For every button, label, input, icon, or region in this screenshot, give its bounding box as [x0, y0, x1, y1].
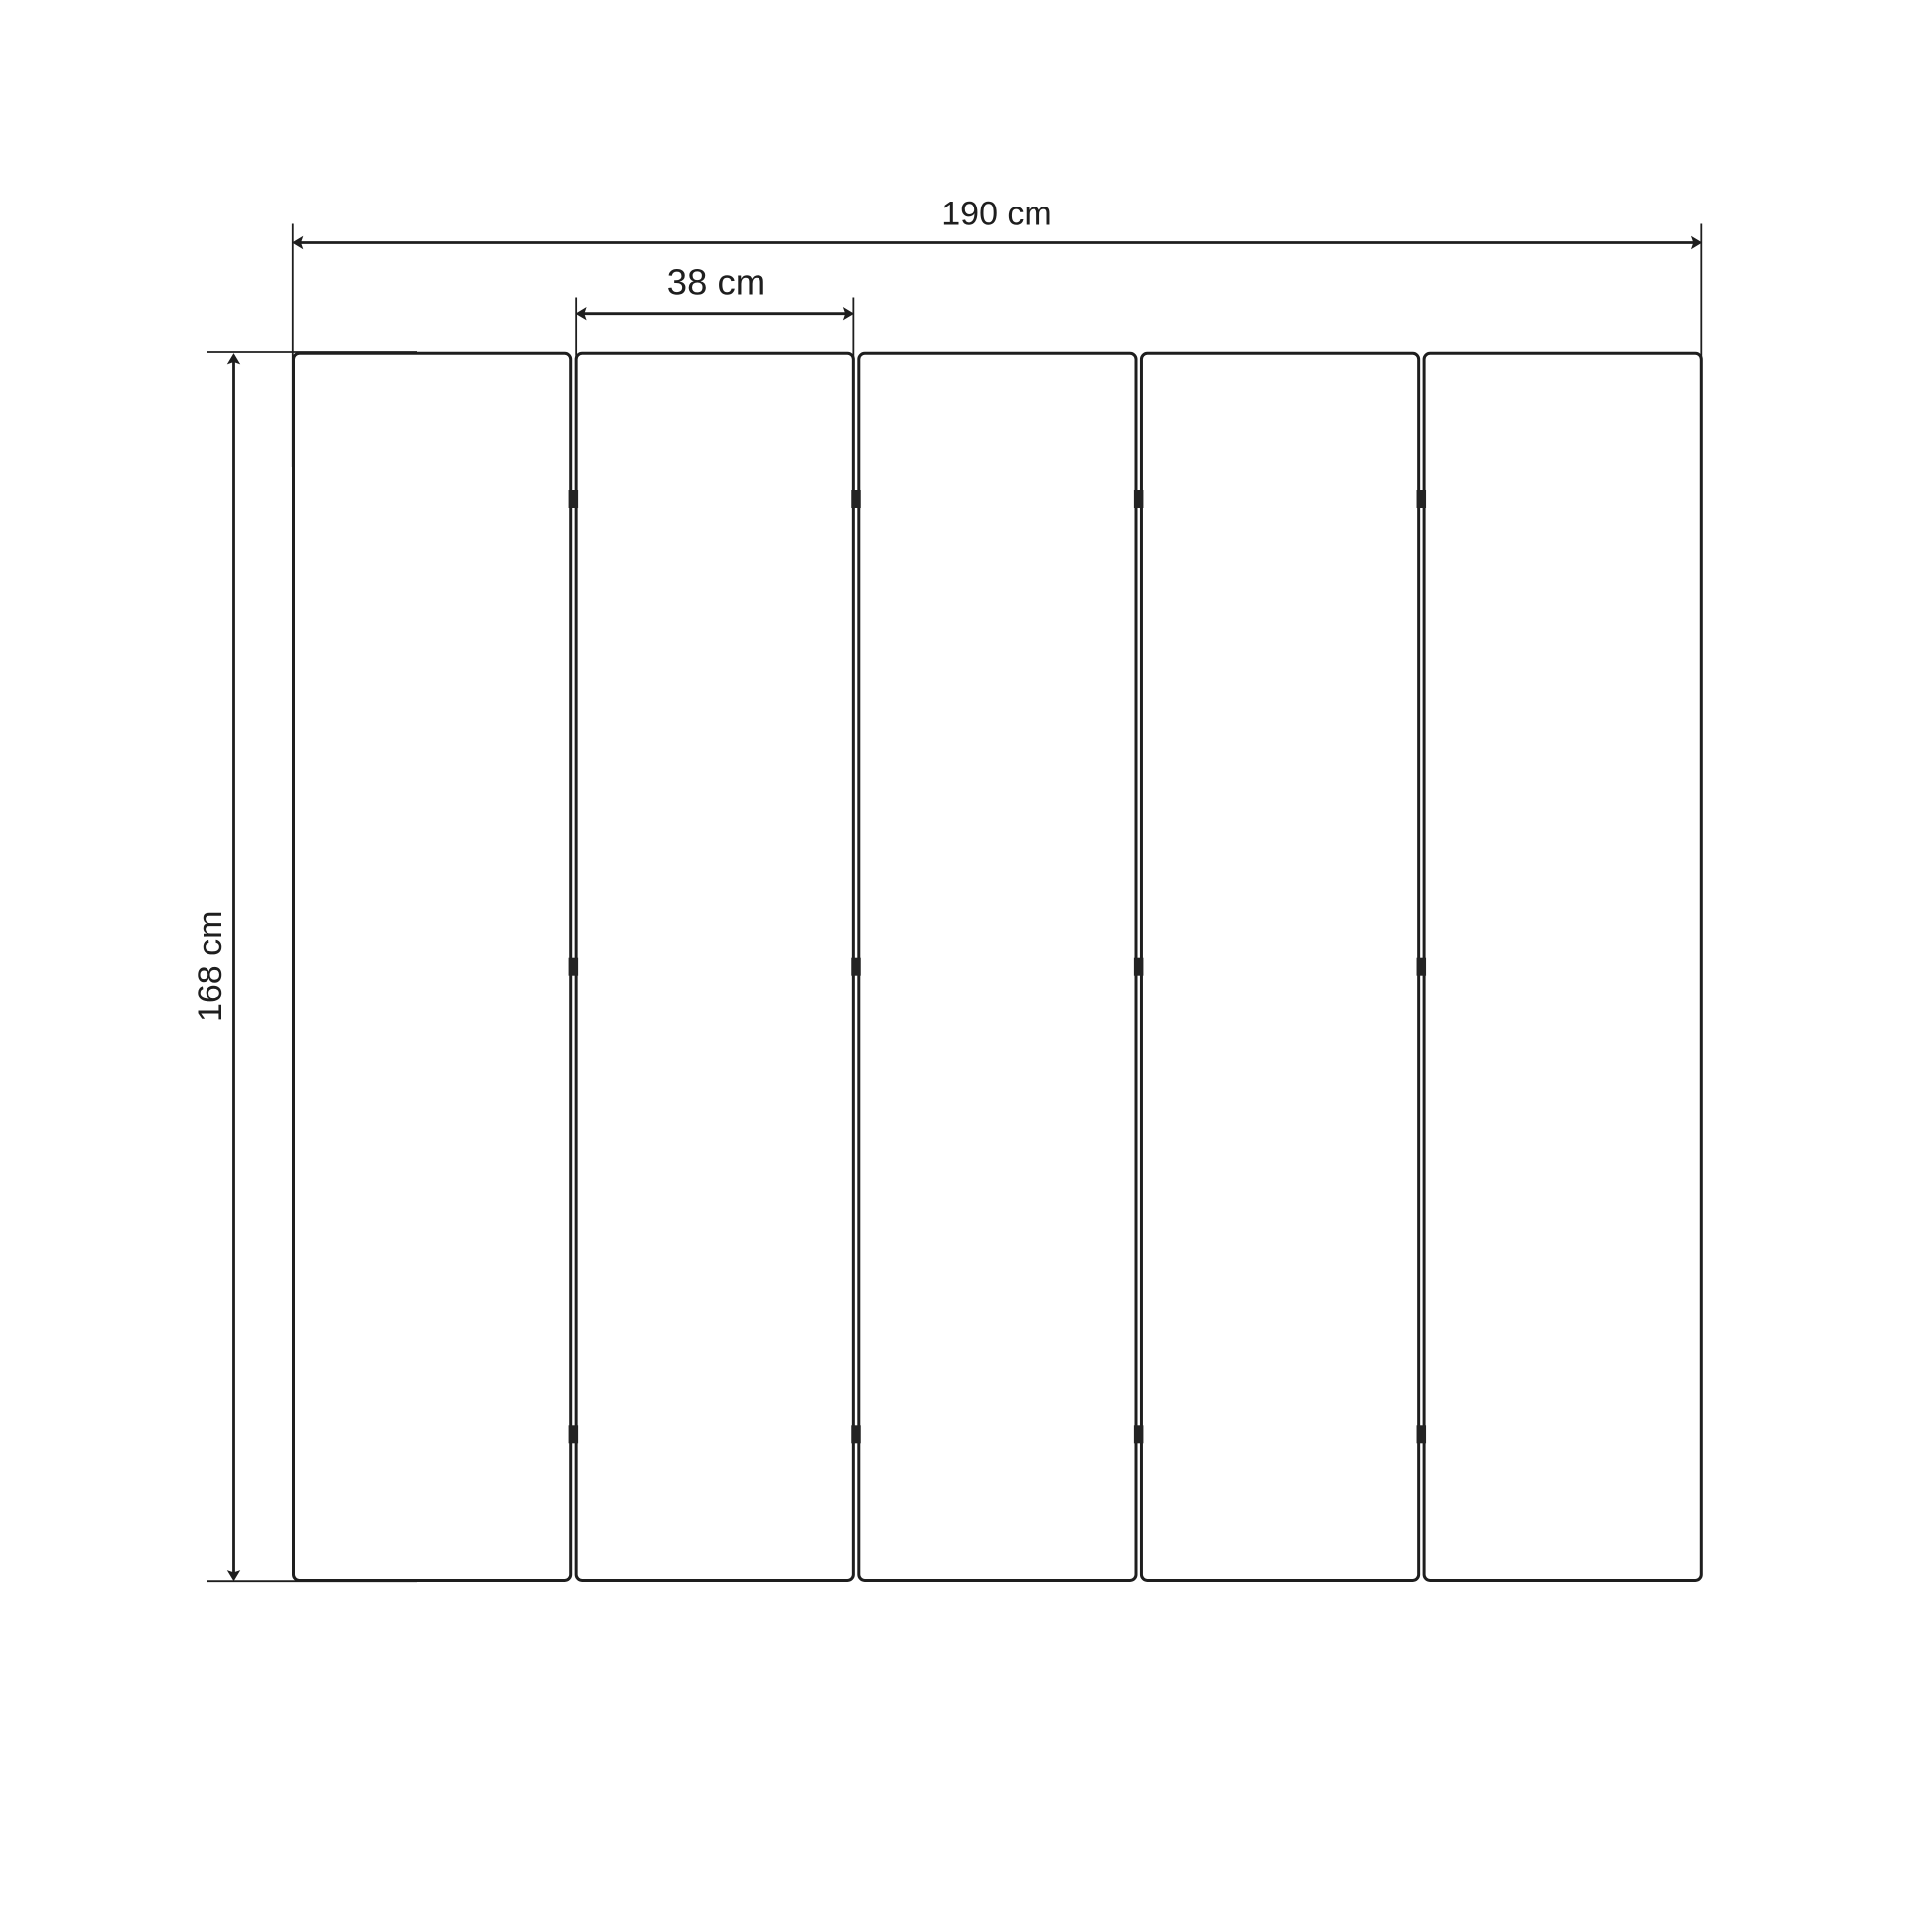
svg-text:38 cm: 38 cm — [667, 262, 765, 303]
svg-text:168 cm: 168 cm — [192, 911, 229, 1023]
svg-text:190 cm: 190 cm — [941, 195, 1052, 232]
